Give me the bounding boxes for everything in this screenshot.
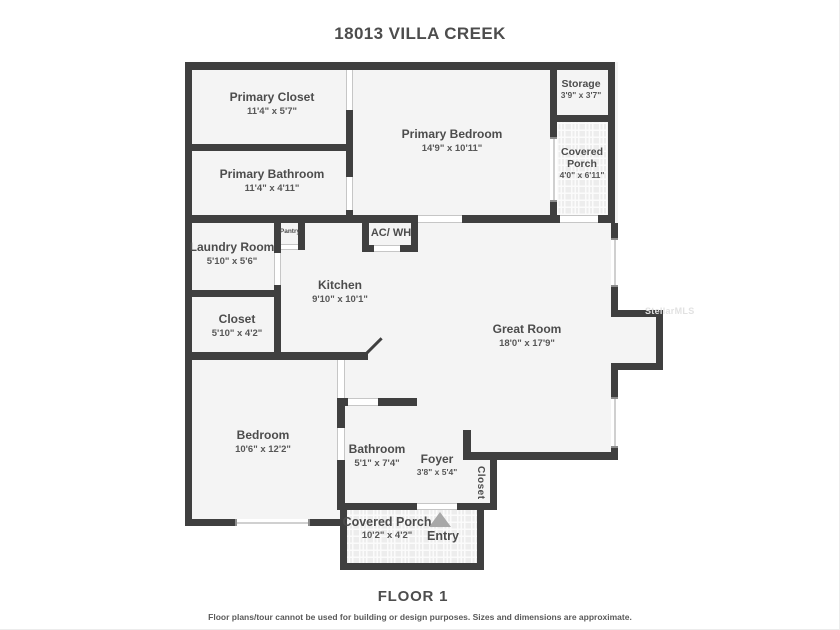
window bbox=[611, 238, 618, 287]
floor-area-bedroom bbox=[185, 452, 347, 526]
door-opening bbox=[337, 428, 345, 460]
door-opening bbox=[337, 360, 345, 398]
label-pantry: Pantry bbox=[280, 228, 300, 235]
wall-segment bbox=[490, 452, 497, 510]
room-label-laundry-room: Laundry Room 5'10" x 5'6" bbox=[190, 240, 275, 268]
wall-segment bbox=[400, 245, 418, 252]
floorplan-page: 18013 VILLA CREEK bbox=[0, 0, 840, 630]
label-entry-closet: Closet bbox=[475, 466, 486, 500]
wall-segment bbox=[463, 430, 471, 460]
wall-segment bbox=[185, 215, 615, 223]
wall-segment bbox=[465, 452, 618, 460]
entry-arrow-icon bbox=[429, 512, 451, 527]
wall-segment bbox=[340, 563, 483, 570]
room-label-primary-bedroom: Primary Bedroom 14'9" x 10'11" bbox=[402, 127, 503, 155]
room-label-primary-bathroom: Primary Bathroom 11'4" x 4'11" bbox=[220, 167, 325, 195]
wall-segment bbox=[608, 62, 615, 223]
room-label-hall-closet: Closet 5'10" x 4'2" bbox=[212, 312, 263, 340]
disclaimer-text: Floor plans/tour cannot be used for buil… bbox=[208, 612, 632, 622]
room-label-covered-porch-upper: Covered Porch 4'0" x 6'11" bbox=[554, 146, 610, 181]
room-label-kitchen: Kitchen 9'10" x 10'1" bbox=[312, 278, 368, 306]
door-opening bbox=[346, 70, 353, 110]
door-opening bbox=[374, 245, 400, 252]
entry-threshold bbox=[417, 503, 457, 510]
door-opening bbox=[274, 253, 281, 285]
wall-segment bbox=[298, 222, 305, 250]
room-label-bedroom: Bedroom 10'6" x 12'2" bbox=[235, 428, 291, 456]
wall-segment bbox=[477, 510, 484, 570]
door-opening bbox=[281, 244, 298, 250]
wall-segment bbox=[185, 144, 352, 151]
wall-segment bbox=[185, 290, 281, 297]
door-opening bbox=[418, 215, 462, 223]
room-label-foyer: Foyer 3'8" x 5'4" bbox=[417, 453, 457, 478]
room-label-bathroom: Bathroom 5'1" x 7'4" bbox=[349, 442, 406, 470]
bay-opening bbox=[611, 317, 618, 363]
label-entry: Entry bbox=[427, 528, 459, 544]
window bbox=[611, 397, 618, 448]
wall-segment bbox=[362, 245, 374, 252]
room-label-primary-closet: Primary Closet 11'4" x 5'7" bbox=[230, 90, 315, 118]
watermark: StellarMLS bbox=[645, 306, 695, 316]
wall-segment bbox=[185, 352, 368, 360]
wall-segment bbox=[550, 115, 615, 122]
label-ac-wh: AC/ WH bbox=[371, 226, 411, 240]
window bbox=[235, 519, 310, 526]
room-label-great-room: Great Room 18'0" x 17'9" bbox=[493, 322, 562, 350]
floor-label: FLOOR 1 bbox=[378, 588, 449, 605]
wall-segment bbox=[611, 363, 663, 370]
page-title: 18013 VILLA CREEK bbox=[334, 24, 506, 44]
door-opening bbox=[348, 398, 378, 406]
door-opening bbox=[346, 177, 353, 210]
room-label-covered-porch-lower: Covered Porch 10'2" x 4'2" bbox=[343, 514, 432, 543]
door-opening bbox=[560, 215, 598, 223]
wall-segment bbox=[656, 310, 663, 370]
room-label-storage: Storage 3'9" x 3'7" bbox=[561, 78, 601, 101]
